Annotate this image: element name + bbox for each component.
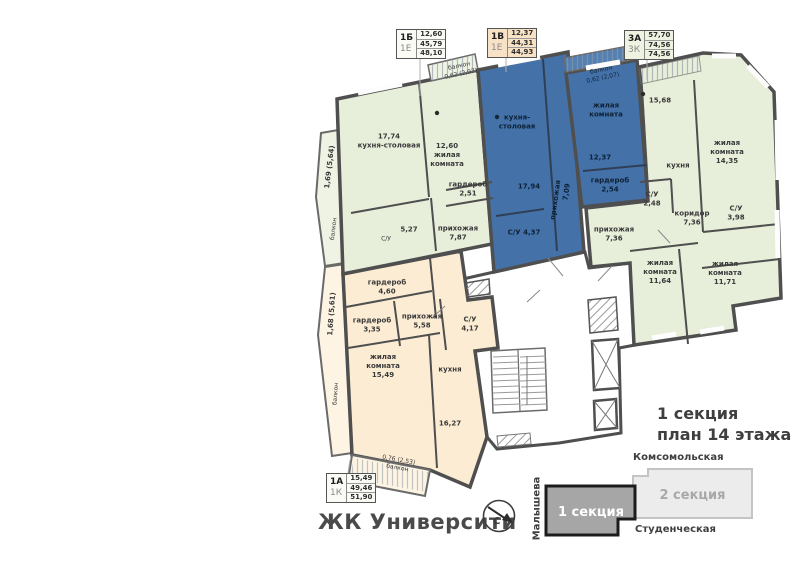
room-label-1b-living: 12,60жилаякомната bbox=[430, 142, 464, 168]
area-value: 45,79 bbox=[417, 40, 445, 50]
flat-category: 1Е bbox=[491, 43, 504, 53]
compass-arrow bbox=[502, 513, 513, 523]
flat-type: 3А bbox=[628, 34, 641, 44]
apartment-1b[interactable] bbox=[337, 70, 492, 274]
legend-flat-1b[interactable]: 1Б 1Е 12,60 45,79 48,10 bbox=[396, 29, 446, 59]
site-section1-label: 1 секция bbox=[548, 505, 634, 520]
room-label-1a-kitchen-value: 16,27 bbox=[439, 420, 461, 429]
room-label-3a-living2: жилаякомната11,64 bbox=[643, 259, 677, 285]
room-label-1v-bath: С/У 4,37 bbox=[508, 229, 541, 238]
legend-1b-type: 1Б 1Е bbox=[397, 30, 417, 58]
room-label-3a-living3: жилаякомната11,71 bbox=[708, 260, 742, 286]
street-studencheskaya: Студенческая bbox=[635, 524, 716, 535]
legend-flat-3a[interactable]: 3А 3К 57,70 74,56 74,56 bbox=[624, 30, 674, 60]
room-label-1a-balcony-left: балкон bbox=[331, 383, 340, 406]
area-value: 49,46 bbox=[347, 484, 375, 494]
room-label-1a-wardrobe1: гардероб4,60 bbox=[368, 278, 407, 296]
legend-3a-values: 57,70 74,56 74,56 bbox=[645, 31, 673, 59]
room-label-1v-kitchen: кухня-столовая bbox=[499, 113, 536, 131]
flat-type: 1В bbox=[491, 32, 504, 42]
shaft-hatch-1 bbox=[588, 297, 618, 333]
room-label-1a-kitchen: кухня bbox=[438, 366, 461, 375]
room-label-3a-kitchen: кухня bbox=[666, 162, 689, 171]
flat-category: 1Е bbox=[400, 44, 413, 54]
room-label-3a-corridor: коридор7,36 bbox=[675, 209, 710, 227]
legend-1a-values: 15,49 49,46 51,90 bbox=[347, 474, 375, 502]
flat-category: 1К bbox=[330, 488, 343, 498]
column-dot-1 bbox=[435, 111, 439, 115]
flat-type: 1Б bbox=[400, 33, 413, 43]
legend-3a-type: 3А 3К bbox=[625, 31, 645, 59]
legend-flat-1a[interactable]: 1А 1К 15,49 49,46 51,90 bbox=[326, 473, 376, 503]
room-label-1b-wardrobe: гардероб2,51 bbox=[449, 180, 488, 198]
room-label-1b-bath-value: 5,27 bbox=[400, 226, 417, 235]
shaft-hatch-2 bbox=[466, 279, 490, 297]
legend-1b-values: 12,60 45,79 48,10 bbox=[417, 30, 445, 58]
floorplan-page: 1Б 1Е 12,60 45,79 48,10 1В 1Е 12,37 44,3… bbox=[0, 0, 800, 566]
room-label-1v-living-value: 12,37 bbox=[589, 154, 611, 163]
compass-north-label: С bbox=[493, 516, 500, 527]
flat-category: 3К bbox=[628, 45, 641, 55]
area-value: 12,60 bbox=[417, 30, 445, 40]
room-label-1a-wardrobe2: гардероб3,35 bbox=[353, 316, 392, 334]
legend-1v-type: 1В 1Е bbox=[488, 29, 508, 57]
area-value: 74,56 bbox=[645, 50, 673, 59]
staircase bbox=[491, 348, 547, 413]
legend-flat-1v[interactable]: 1В 1Е 12,37 44,31 44,93 bbox=[487, 28, 537, 58]
flat-type: 1А bbox=[330, 477, 343, 487]
elevator-small bbox=[594, 399, 617, 430]
room-label-1b-bath: С/У bbox=[381, 235, 391, 243]
room-label-1b-kitchen: 17,74кухня-столовая bbox=[358, 132, 421, 150]
column-dot-3 bbox=[641, 92, 645, 96]
room-label-1a-hall: прихожая5,58 bbox=[402, 312, 442, 330]
area-value: 48,10 bbox=[417, 49, 445, 58]
room-label-3a-bath2: С/У3,98 bbox=[727, 204, 744, 222]
room-label-3a-hall: прихожая7,36 bbox=[594, 225, 634, 243]
area-value: 44,93 bbox=[508, 48, 536, 57]
entrance-rail bbox=[497, 433, 531, 447]
room-label-1v-living: жилаякомната bbox=[589, 101, 623, 119]
legend-1a-type: 1А 1К bbox=[327, 474, 347, 502]
room-label-1v-kitchen-value: 17,94 bbox=[518, 183, 540, 192]
room-label-1v-wardrobe: гардероб2,54 bbox=[591, 176, 630, 194]
area-value: 57,70 bbox=[645, 31, 673, 41]
area-value: 74,56 bbox=[645, 41, 673, 51]
area-value: 15,49 bbox=[347, 474, 375, 484]
room-label-3a-living1: жилаякомната14,35 bbox=[710, 139, 744, 165]
room-label-1a-bath: С/У4,17 bbox=[461, 315, 478, 333]
room-label-3a-kitchen-value: 15,68 bbox=[649, 97, 671, 106]
legend-1v-values: 12,37 44,31 44,93 bbox=[508, 29, 536, 57]
room-label-1a-living: жилаякомната15,49 bbox=[366, 353, 400, 379]
area-value: 12,37 bbox=[508, 29, 536, 39]
area-value: 51,90 bbox=[347, 493, 375, 502]
section-title: 1 секция bbox=[657, 404, 791, 425]
room-label-1b-hall: прихожая7,87 bbox=[438, 224, 478, 242]
site-section2-label: 2 секция bbox=[640, 488, 745, 503]
street-malysheva: Малышева bbox=[531, 477, 542, 541]
elevator-large bbox=[592, 339, 620, 390]
area-value: 44,31 bbox=[508, 39, 536, 49]
street-komsomolskaya: Комсомольская bbox=[633, 452, 724, 463]
room-label-3a-bath1: С/У2,48 bbox=[643, 190, 660, 208]
